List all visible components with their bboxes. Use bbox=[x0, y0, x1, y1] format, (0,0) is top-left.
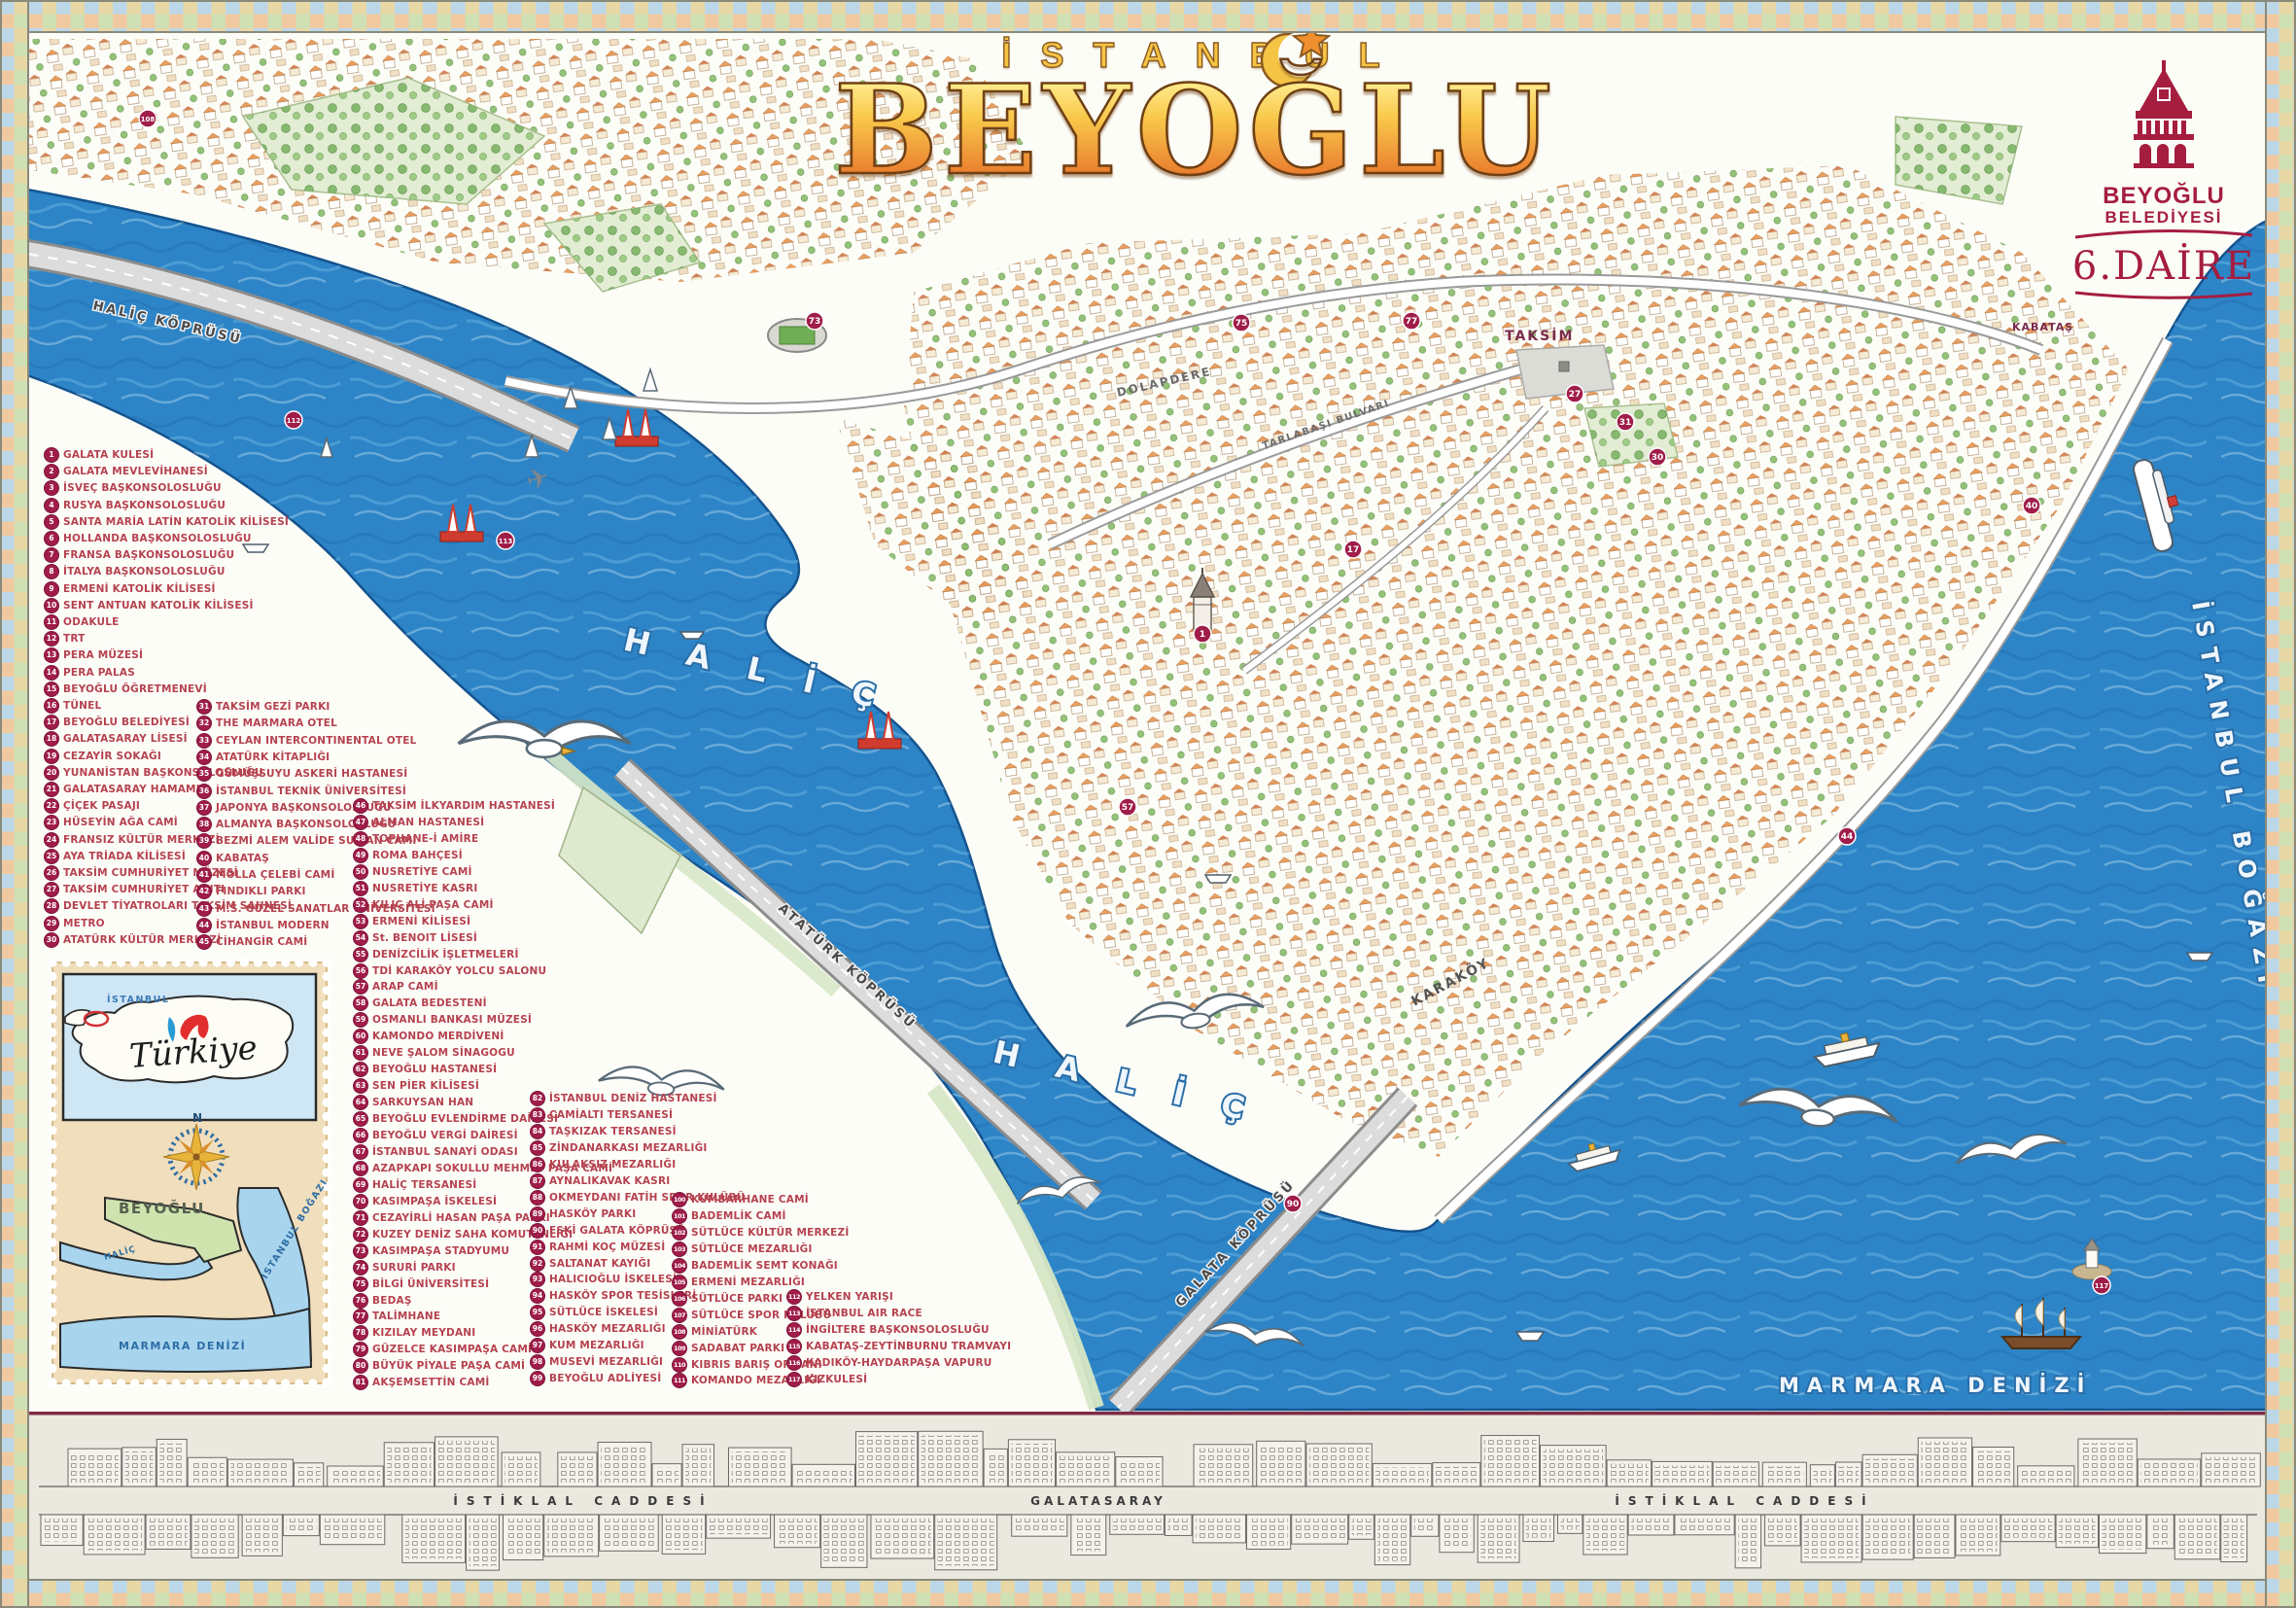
legend-item-label: TAŞKIZAK TERSANESİ bbox=[549, 1126, 677, 1137]
legend-item-label: THE MARMARA OTEL bbox=[216, 717, 337, 729]
legend-item-label: HASKÖY PARKI bbox=[549, 1208, 636, 1220]
legend-item-label: TDİ KARAKÖY YOLCU SALONU bbox=[372, 965, 546, 977]
legend-item-label: BEYOĞLU ADLİYESİ bbox=[549, 1373, 661, 1384]
legend-item-label: KULAKSIZ MEZARLIĞI bbox=[549, 1159, 676, 1171]
legend-item-label: KIZILAY MEYDANI bbox=[372, 1327, 475, 1339]
svg-text:117: 117 bbox=[2095, 1282, 2109, 1290]
legend-number-badge: 107 bbox=[673, 1309, 686, 1322]
legend-item-label: TAKSİM İLKYARDIM HASTANESİ bbox=[372, 800, 555, 812]
legend-item-label: CEZAYİRLİ HASAN PAŞA PARKI bbox=[372, 1212, 550, 1224]
map-marker: 117 bbox=[2093, 1276, 2110, 1294]
inset-istanbul-label: İSTANBUL bbox=[107, 995, 169, 1005]
legend-number-badge: 16 bbox=[45, 699, 58, 713]
legend-item-label: İNGİLTERE BAŞKONSOLOSLUĞU bbox=[806, 1324, 990, 1336]
legend-item-label: KABATAŞ-ZEYTİNBURNU TRAMVAYI bbox=[806, 1341, 1011, 1352]
compass-n-label: N bbox=[192, 1111, 202, 1125]
legend-number-badge: 87 bbox=[531, 1174, 544, 1188]
legend-item-label: KASIMPAŞA İSKELESİ bbox=[372, 1196, 497, 1207]
legend-item-label: İSTANBUL DENİZ HASTANESİ bbox=[549, 1093, 717, 1104]
inset-beyoglu-label: BEYOĞLU bbox=[119, 1199, 205, 1217]
legend-number-badge: 66 bbox=[354, 1129, 367, 1142]
legend-item-label: ÇİÇEK PASAJI bbox=[63, 800, 140, 812]
legend-number-badge: 84 bbox=[531, 1125, 544, 1138]
legend-number-badge: 68 bbox=[354, 1162, 367, 1175]
legend-number-badge: 114 bbox=[787, 1323, 801, 1337]
legend-number-badge: 67 bbox=[354, 1145, 367, 1159]
legend-item-label: KUMBARHANE CAMİ bbox=[691, 1194, 809, 1206]
legend-item-label: GALATASARAY HAMAMI bbox=[63, 784, 200, 795]
legend-number-badge: 41 bbox=[197, 868, 211, 882]
decorative-border-bottom bbox=[0, 1579, 2296, 1608]
legend-number-badge: 106 bbox=[673, 1292, 686, 1306]
legend-item-label: BEYOĞLU ÖĞRETMENEVİ bbox=[63, 683, 207, 695]
svg-text:73: 73 bbox=[809, 317, 821, 327]
legend-number-badge: 64 bbox=[354, 1096, 367, 1109]
legend-item-label: DENİZCİLİK İŞLETMELERİ bbox=[372, 949, 519, 961]
legend-item-label: CAMİALTI TERSANESİ bbox=[549, 1109, 673, 1121]
legend-item-label: RAHMİ KOÇ MÜZESİ bbox=[549, 1241, 665, 1253]
legend-item-label: BİLGİ ÜNİVERSİTESİ bbox=[372, 1278, 489, 1290]
svg-text:27: 27 bbox=[1569, 390, 1582, 400]
legend-item-label: ESKİ GALATA KÖPRÜSÜ bbox=[549, 1225, 685, 1237]
legend-number-badge: 72 bbox=[354, 1228, 367, 1241]
taksim-monument bbox=[1559, 362, 1569, 371]
legend-item-label: BEYOĞLU HASTANESİ bbox=[372, 1064, 497, 1075]
legend-item-label: RUSYA BAŞKONSOLOSLUĞU bbox=[63, 500, 226, 511]
legend-number-badge: 82 bbox=[531, 1092, 544, 1105]
legend-number-badge: 15 bbox=[45, 682, 58, 696]
legend-number-badge: 49 bbox=[354, 849, 367, 862]
legend-item-label: BADEMLİK CAMİ bbox=[691, 1210, 786, 1222]
legend-number-badge: 37 bbox=[197, 801, 211, 815]
map-marker: 30 bbox=[1649, 448, 1666, 466]
legend-number-badge: 26 bbox=[45, 866, 58, 880]
legend-item-label: TÜNEL bbox=[63, 700, 101, 712]
legend-number-badge: 88 bbox=[531, 1191, 544, 1205]
legend-item-label: İSTANBUL SANAYİ ODASI bbox=[372, 1146, 518, 1158]
legend-number-badge: 50 bbox=[354, 865, 367, 879]
svg-text:44: 44 bbox=[1841, 832, 1854, 842]
legend-item-label: FINDIKLI PARKI bbox=[216, 886, 306, 897]
legend-number-badge: 20 bbox=[45, 766, 58, 780]
legend-item-label: İSTANBUL MODERN bbox=[216, 920, 330, 931]
legend-item-label: TAKSİM CUMHURİYET MÜZESİ bbox=[63, 867, 238, 879]
legend-item-label: KADIKÖY-HAYDARPAŞA VAPURU bbox=[806, 1357, 992, 1369]
map-marker: 17 bbox=[1344, 541, 1362, 558]
legend-item-label: GALATA KULESİ bbox=[63, 449, 154, 461]
map-marker: 27 bbox=[1566, 385, 1583, 402]
legend-item-label: MİNİATÜRK bbox=[691, 1326, 757, 1338]
legend-number-badge: 52 bbox=[354, 898, 367, 912]
logo-swoosh bbox=[2071, 227, 2256, 241]
legend-number-badge: 109 bbox=[673, 1342, 686, 1355]
legend-number-badge: 11 bbox=[45, 615, 58, 629]
legend-item-label: SÜTLÜCE MEZARLIĞI bbox=[691, 1243, 813, 1255]
legend-item-label: ZİNDANARKASI MEZARLIĞI bbox=[549, 1142, 708, 1154]
legend-number-badge: 116 bbox=[787, 1356, 801, 1370]
legend-number-badge: 85 bbox=[531, 1141, 544, 1155]
legend-number-badge: 108 bbox=[673, 1325, 686, 1339]
legend-item-label: KASIMPAŞA STADYUMU bbox=[372, 1245, 509, 1257]
decorative-border-left bbox=[0, 0, 29, 1608]
legend-item-label: İSTANBUL AIR RACE bbox=[806, 1308, 922, 1319]
inset-stamp: İSTANBUL Türkiye N BEYOĞLU HALİÇ İSTANBU… bbox=[49, 959, 330, 1387]
legend-item-label: NUSRETİYE CAMİ bbox=[372, 866, 472, 878]
legend-number-badge: 90 bbox=[531, 1224, 544, 1238]
legend-number-badge: 75 bbox=[354, 1277, 367, 1291]
legend-item-label: SALTANAT KAYIĞI bbox=[549, 1258, 650, 1270]
map-marker: 75 bbox=[1233, 314, 1250, 332]
legend-number-badge: 100 bbox=[673, 1193, 686, 1206]
legend-item-label: FRANSIZ KÜLTÜR MERKEZİ bbox=[63, 834, 220, 846]
legend-item-label: BÜYÜK PİYALE PAŞA CAMİ bbox=[372, 1360, 525, 1372]
legend-item-label: BADEMLİK SEMT KONAĞI bbox=[691, 1260, 838, 1272]
legend-item-label: ERMENİ KATOLİK KİLİSESİ bbox=[63, 583, 216, 595]
svg-text:40: 40 bbox=[2026, 502, 2038, 511]
legend-number-badge: 44 bbox=[197, 919, 211, 932]
legend-number-badge: 110 bbox=[673, 1358, 686, 1372]
legend-item-label: SURURİ PARKI bbox=[372, 1262, 456, 1274]
inset-turkiye-map: İSTANBUL Türkiye bbox=[63, 974, 316, 1120]
legend-item-label: FRANSA BAŞKONSOLOSLUĞU bbox=[63, 549, 234, 561]
legend-item-label: SÜTLÜCE PARKI bbox=[691, 1293, 783, 1305]
legend-item-label: ATATÜRK KİTAPLIĞI bbox=[216, 752, 330, 763]
legend-item-label: İTALYA BAŞKONSOLOSLUĞU bbox=[63, 566, 226, 577]
legend-number-badge: 117 bbox=[787, 1373, 801, 1386]
legend-item-label: NEVE ŞALOM SİNAGOGU bbox=[372, 1047, 515, 1059]
legend-item-label: KOMANDO MEZARLIĞI bbox=[691, 1375, 820, 1386]
legend-item-label: KUM MEZARLIĞI bbox=[549, 1340, 644, 1351]
map-marker: 40 bbox=[2023, 497, 2040, 514]
legend-item-label: AYNALIKAVAK KASRI bbox=[549, 1175, 670, 1187]
legend-number-badge: 46 bbox=[354, 799, 367, 813]
legend-item-label: HOLLANDA BAŞKONSOLOSLUĞU bbox=[63, 533, 252, 544]
legend-item-label: ROMA BAHÇESİ bbox=[372, 850, 463, 861]
legend-item-label: SADABAT PARKI bbox=[691, 1343, 784, 1354]
legend-item-label: ARAP CAMİ bbox=[372, 981, 438, 993]
legend-number-badge: 86 bbox=[531, 1158, 544, 1171]
legend-number-badge: 48 bbox=[354, 832, 367, 846]
legend-item-label: GÜMÜŞSUYU ASKERİ HASTANESİ bbox=[216, 768, 407, 780]
legend-number-badge: 65 bbox=[354, 1112, 367, 1126]
svg-text:75: 75 bbox=[1235, 319, 1248, 329]
legend-number-badge: 34 bbox=[197, 751, 211, 764]
legend-item-label: KILIÇ ALİ PAŞA CAMİ bbox=[372, 899, 494, 911]
legend-number-badge: 71 bbox=[354, 1211, 367, 1225]
legend-item-label: ALMANYA BAŞKONSOLOSLUĞU bbox=[216, 819, 397, 830]
galata-tower-icon bbox=[2120, 60, 2208, 185]
logo-name-line1: BEYOĞLU bbox=[2069, 185, 2259, 208]
map-marker: 112 bbox=[285, 411, 302, 429]
legend-item-label: BEYOĞLU VERGİ DAİRESİ bbox=[372, 1130, 518, 1141]
logo-name-line2: BELEDİYESİ bbox=[2069, 208, 2259, 227]
legend-number-badge: 70 bbox=[354, 1195, 367, 1208]
map-marker: 1 bbox=[1194, 625, 1211, 643]
legend-number-badge: 113 bbox=[787, 1307, 801, 1320]
legend-item-label: NUSRETİYE KASRI bbox=[372, 883, 477, 894]
legend-number-badge: 102 bbox=[673, 1226, 686, 1240]
legend-number-badge: 103 bbox=[673, 1242, 686, 1256]
legend-number-badge: 101 bbox=[673, 1209, 686, 1223]
svg-text:57: 57 bbox=[1122, 803, 1134, 813]
legend-item-label: GÜZELCE KASIMPAŞA CAMİ bbox=[372, 1344, 532, 1355]
svg-text:112: 112 bbox=[287, 417, 301, 425]
legend-item-label: İSTANBUL TEKNİK ÜNİVERSİTESİ bbox=[216, 786, 406, 797]
legend-item-label: AKŞEMSETTİN CAMİ bbox=[372, 1377, 489, 1388]
legend-number-badge: 6 bbox=[45, 532, 58, 545]
legend-item-label: ERMENİ KİLİSESİ bbox=[372, 916, 470, 927]
legend-item-label: TALİMHANE bbox=[372, 1311, 440, 1322]
legend-number-badge: 31 bbox=[197, 700, 211, 714]
legend-number-badge: 43 bbox=[197, 902, 211, 916]
legend-number-badge: 33 bbox=[197, 734, 211, 748]
legend-number-badge: 92 bbox=[531, 1257, 544, 1271]
legend-item-label: KABATAŞ bbox=[216, 853, 269, 864]
legend-number-badge: 51 bbox=[354, 882, 367, 895]
map-marker: 113 bbox=[497, 532, 514, 549]
legend-item-label: HALICIOĞLU İSKELESİ bbox=[549, 1274, 677, 1285]
legend-number-badge: 24 bbox=[45, 833, 58, 847]
legend-number-badge: 29 bbox=[45, 917, 58, 930]
legend-number-badge: 54 bbox=[354, 931, 367, 945]
legend-item-label: YELKEN YARIŞI bbox=[806, 1291, 893, 1303]
svg-text:17: 17 bbox=[1347, 545, 1360, 555]
inset-marmara-label: MARMARA DENİZİ bbox=[119, 1339, 246, 1352]
svg-text:1: 1 bbox=[1200, 630, 1205, 640]
legend-item-label: AYA TRİADA KİLİSESİ bbox=[63, 851, 186, 862]
municipality-logo: BEYOĞLU BELEDİYESİ 6.DAİRE bbox=[2069, 60, 2259, 306]
legend-item-label: CİHANGİR CAMİ bbox=[216, 936, 307, 948]
marmara-label: MARMARA DENİZİ bbox=[1779, 1373, 2092, 1397]
legend-item-label: SÜTLÜCE KÜLTÜR MERKEZİ bbox=[691, 1227, 849, 1239]
svg-text:77: 77 bbox=[1406, 317, 1418, 327]
taksim-label: TAKSİM bbox=[1505, 328, 1574, 344]
legend-number-badge: 25 bbox=[45, 850, 58, 863]
legend-number-badge: 55 bbox=[354, 948, 367, 961]
legend-item-label: GALATASARAY LİSESİ bbox=[63, 733, 188, 745]
legend-number-badge: 9 bbox=[45, 582, 58, 596]
legend-item-label: OSMANLI BANKASI MÜZESİ bbox=[372, 1014, 532, 1026]
logo-daire: 6.DAİRE bbox=[2069, 245, 2259, 288]
legend-item-label: MOLLA ÇELEBİ CAMİ bbox=[216, 869, 334, 881]
legend-number-badge: 76 bbox=[354, 1294, 367, 1308]
legend-item-label: İSVEÇ BAŞKONSOLOSLUĞU bbox=[63, 482, 222, 494]
beyoglu-map-poster: { "poster": { "title_kicker": "İSTANBUL"… bbox=[0, 0, 2296, 1608]
map-marker: 90 bbox=[1284, 1195, 1302, 1212]
map-marker: 31 bbox=[1617, 413, 1634, 431]
legend-number-badge: 83 bbox=[531, 1108, 544, 1122]
legend-item-label: CEYLAN INTERCONTINENTAL OTEL bbox=[216, 735, 416, 747]
legend-item-label: KAMONDO MERDİVENİ bbox=[372, 1031, 504, 1042]
legend-item-label: KIZKULESİ bbox=[806, 1374, 867, 1385]
legend-item-label: BEDAŞ bbox=[372, 1295, 412, 1307]
legend-number-badge: 115 bbox=[787, 1340, 801, 1353]
legend-number-badge: 30 bbox=[45, 933, 58, 947]
legend-item-label: SEN PİER KİLİSESİ bbox=[372, 1080, 479, 1092]
legend-number-badge: 4 bbox=[45, 499, 58, 512]
legend-number-badge: 38 bbox=[197, 818, 211, 831]
legend-item-label: BEYOĞLU BELEDİYESİ bbox=[63, 717, 190, 728]
map-marker: 108 bbox=[139, 110, 157, 127]
legend-item-label: GALATA MEVLEVİHANESİ bbox=[63, 466, 208, 477]
legend-number-badge: 91 bbox=[531, 1241, 544, 1254]
legend-item-label: TRT bbox=[63, 633, 86, 645]
legend-item-label: ODAKULE bbox=[63, 616, 120, 628]
legend-number-badge: 21 bbox=[45, 783, 58, 796]
svg-text:90: 90 bbox=[1287, 1200, 1300, 1209]
legend-number-badge: 40 bbox=[197, 852, 211, 865]
legend-item-label: SANTA MARİA LATİN KATOLİK KİLİSESİ bbox=[63, 516, 289, 528]
legend-item-label: ERMENİ MEZARLIĞI bbox=[691, 1276, 805, 1288]
legend-number-badge: 105 bbox=[673, 1276, 686, 1289]
legend-item-label: SENT ANTUAN KATOLİK KİLİSESİ bbox=[63, 600, 254, 612]
legend-item-label: MUSEVİ MEZARLIĞI bbox=[549, 1356, 663, 1368]
legend-number-badge: 14 bbox=[45, 666, 58, 680]
logo-swoosh bbox=[2071, 289, 2256, 302]
legend-item-label: CEZAYİR SOKAĞI bbox=[63, 751, 161, 762]
legend-item-label: TOPHANE-İ AMİRE bbox=[372, 833, 478, 845]
legend-number-badge: 5 bbox=[45, 515, 58, 529]
decorative-border-right bbox=[2265, 0, 2296, 1608]
legend-item-label: SÜTLÜCE İSKELESİ bbox=[549, 1307, 658, 1318]
legend-number-badge: 1 bbox=[45, 448, 58, 462]
legend-number-badge: 112 bbox=[787, 1290, 801, 1304]
map-marker: 73 bbox=[806, 312, 823, 330]
legend-number-badge: 19 bbox=[45, 750, 58, 763]
legend-item-label: TAKSİM GEZİ PARKI bbox=[216, 701, 330, 713]
legend-item-label: METRO bbox=[63, 918, 105, 929]
legend-item-label: SARKUYSAN HAN bbox=[372, 1097, 473, 1108]
decorative-border-top bbox=[0, 0, 2296, 33]
legend-item-label: HALİÇ TERSANESİ bbox=[372, 1179, 476, 1191]
legend-number-badge: 47 bbox=[354, 816, 367, 829]
legend-item-label: HÜSEYİN AĞA CAMİ bbox=[63, 817, 178, 828]
legend-item-label: PERA PALAS bbox=[63, 667, 135, 679]
legend-number-badge: 74 bbox=[354, 1261, 367, 1275]
map-marker: 44 bbox=[1838, 827, 1856, 845]
legend-item-label: St. BENOIT LİSESİ bbox=[372, 932, 477, 944]
legend-item-label: KIBRIS BARIŞ ORMANI bbox=[691, 1359, 822, 1371]
legend-number-badge: 73 bbox=[354, 1244, 367, 1258]
legend-number-badge: 10 bbox=[45, 599, 58, 612]
legend-item-label: ALMAN HASTANESİ bbox=[372, 817, 484, 828]
legend-number-badge: 53 bbox=[354, 915, 367, 928]
legend-item-label: GALATA BEDESTENİ bbox=[372, 997, 487, 1009]
legend-number-badge: 104 bbox=[673, 1259, 686, 1273]
map-marker: 57 bbox=[1119, 798, 1136, 816]
legend-number-badge: 89 bbox=[531, 1207, 544, 1221]
svg-text:113: 113 bbox=[499, 538, 513, 545]
kabatas-label: KABATAŞ bbox=[2012, 321, 2073, 333]
svg-text:108: 108 bbox=[141, 116, 156, 123]
svg-text:31: 31 bbox=[1619, 418, 1632, 428]
legend-number-badge: 56 bbox=[354, 964, 367, 978]
map-marker: 77 bbox=[1403, 312, 1420, 330]
svg-text:30: 30 bbox=[1652, 453, 1664, 463]
legend-item-label: HASKÖY MEZARLIĞI bbox=[549, 1323, 666, 1335]
legend-number-badge: 36 bbox=[197, 785, 211, 798]
legend-item-label: PERA MÜZESİ bbox=[63, 649, 143, 661]
legend-number-badge: 69 bbox=[354, 1178, 367, 1192]
